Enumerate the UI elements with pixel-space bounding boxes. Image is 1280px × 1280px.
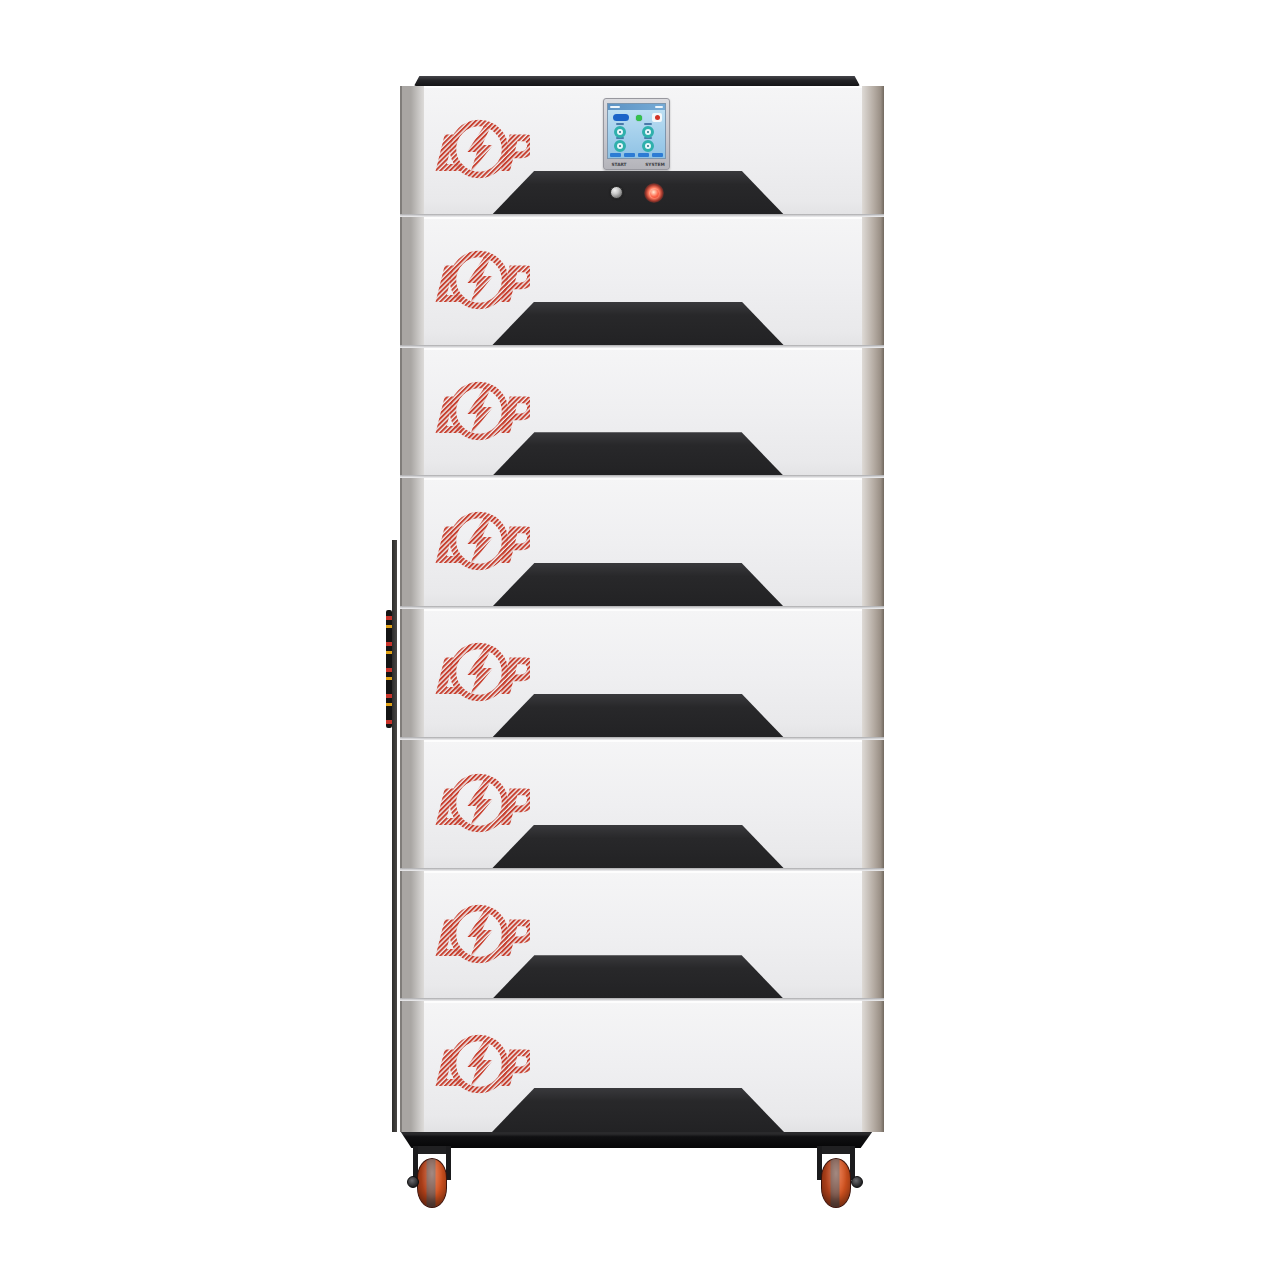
lp-brand-logo: L P (434, 772, 530, 836)
lightning-bolt-icon (467, 911, 493, 959)
lightning-bolt-icon (467, 649, 493, 697)
battery-module: L P S (424, 217, 862, 348)
top-cap (414, 76, 860, 86)
battery-module: L P S (424, 609, 862, 740)
battery-module: L P S (424, 1001, 862, 1132)
alarm-icon (652, 113, 662, 122)
screen-titlebar (608, 104, 665, 110)
gauge-dial (642, 140, 654, 152)
handle-recess (492, 432, 784, 476)
battery-module: L P S (424, 871, 862, 1002)
system-label: SYSTEM (644, 162, 666, 167)
lp-brand-logo: L P (434, 641, 530, 705)
base-plinth (397, 1132, 876, 1148)
handle-recess (492, 825, 784, 869)
gauge-label (644, 123, 652, 125)
logo-letter-p: P (496, 256, 530, 313)
handle-recess (492, 171, 784, 215)
wheel (417, 1158, 447, 1208)
product-photo-stage: L P S (0, 0, 1280, 1280)
screen-bezel: START SYSTEM (603, 98, 670, 170)
lightning-bolt-icon (467, 1041, 493, 1089)
wheel (821, 1158, 851, 1208)
handle-recess (492, 1088, 784, 1132)
lightning-bolt-icon (467, 388, 493, 436)
cabinet-body: L P S (400, 86, 884, 1132)
touchscreen-display[interactable] (607, 103, 666, 159)
battery-module: L P S (424, 348, 862, 479)
logo-letter-p: P (496, 779, 530, 836)
gauge-label (616, 123, 624, 125)
handle-recess (492, 694, 784, 738)
screen-menu-button (652, 153, 663, 157)
screen-menu-button (624, 153, 635, 157)
side-connector-strip (386, 610, 392, 728)
left-side-panel-edge (392, 540, 397, 1132)
gauge-dial (614, 126, 626, 138)
control-module: L P S (424, 86, 862, 217)
cabinet-right-bevel (862, 86, 884, 1132)
battery-module: L P S (424, 740, 862, 871)
caster-wheel-right (812, 1144, 860, 1206)
logo-letter-p: P (496, 910, 530, 967)
ok-indicator-icon (636, 115, 642, 121)
power-button[interactable] (610, 186, 623, 199)
caster-wheel-left (408, 1144, 456, 1206)
logo-letter-p: P (496, 387, 530, 444)
handle-recess (492, 563, 784, 607)
logo-letter-p: P (496, 648, 530, 705)
logo-letter-p: P (496, 517, 530, 574)
lp-brand-logo: L P (434, 1033, 530, 1097)
status-led (644, 183, 664, 203)
cabinet-left-bevel (400, 86, 424, 1132)
battery-module: L P S (424, 478, 862, 609)
cabinet-face: L P S (424, 86, 862, 1132)
logo-letter-p: P (496, 1040, 530, 1097)
handle-recess (492, 302, 784, 346)
logo-letter-p: P (496, 125, 530, 182)
lp-brand-logo: L P (434, 380, 530, 444)
lightning-bolt-icon (467, 257, 493, 305)
screen-menu-button (610, 153, 621, 157)
gauge-dial (642, 126, 654, 138)
lp-brand-logo: L P (434, 118, 530, 182)
lightning-bolt-icon (467, 780, 493, 828)
axle-nut (407, 1176, 419, 1188)
lp-brand-logo: L P (434, 903, 530, 967)
lp-brand-logo: L P (434, 510, 530, 574)
screen-menu-button (638, 153, 649, 157)
handle-recess (492, 955, 784, 999)
axle-nut (851, 1176, 863, 1188)
gauge-dial (614, 140, 626, 152)
start-label: START (608, 162, 630, 167)
mode-pill (613, 114, 629, 121)
lightning-bolt-icon (467, 126, 493, 174)
lp-brand-logo: L P (434, 249, 530, 313)
lightning-bolt-icon (467, 518, 493, 566)
